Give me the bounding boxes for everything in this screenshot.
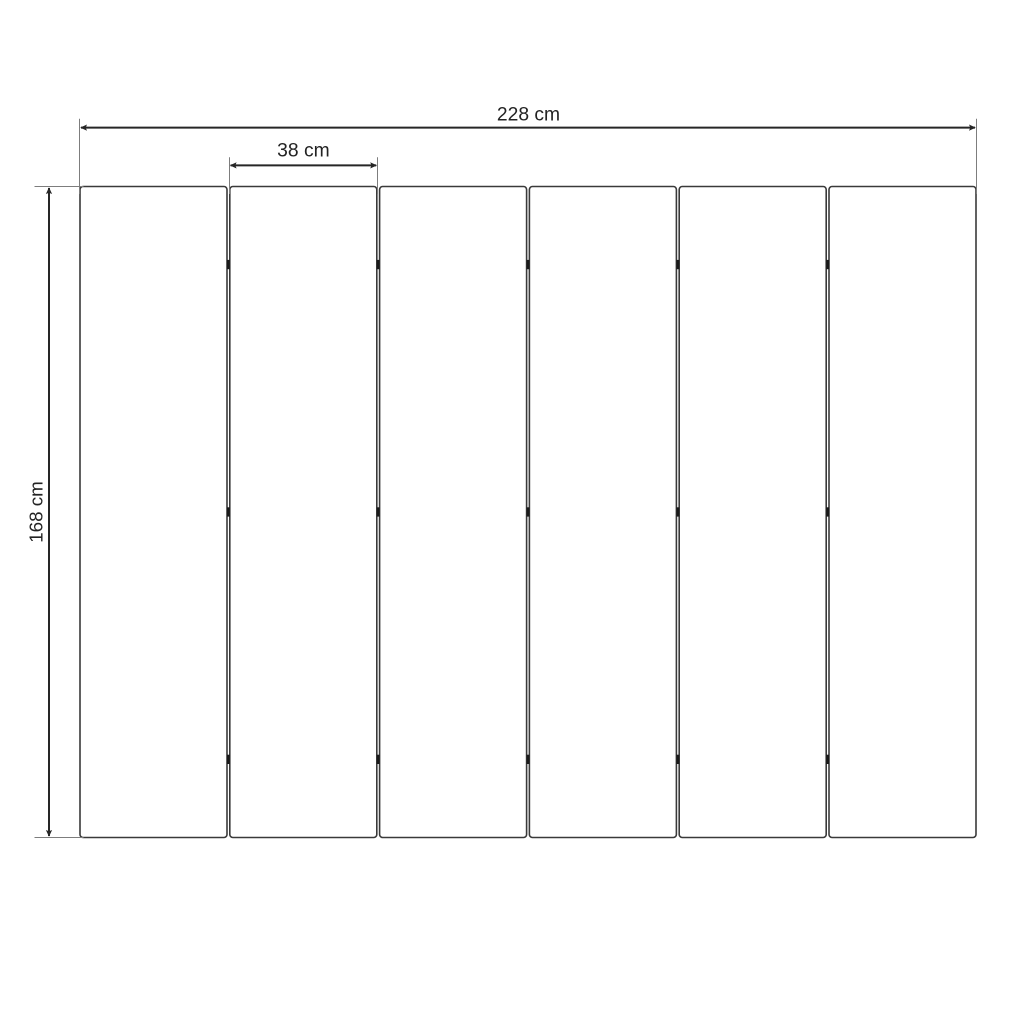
svg-text:168 cm: 168 cm — [25, 481, 46, 543]
svg-text:228 cm: 228 cm — [497, 105, 560, 126]
svg-text:38 cm: 38 cm — [277, 140, 330, 161]
